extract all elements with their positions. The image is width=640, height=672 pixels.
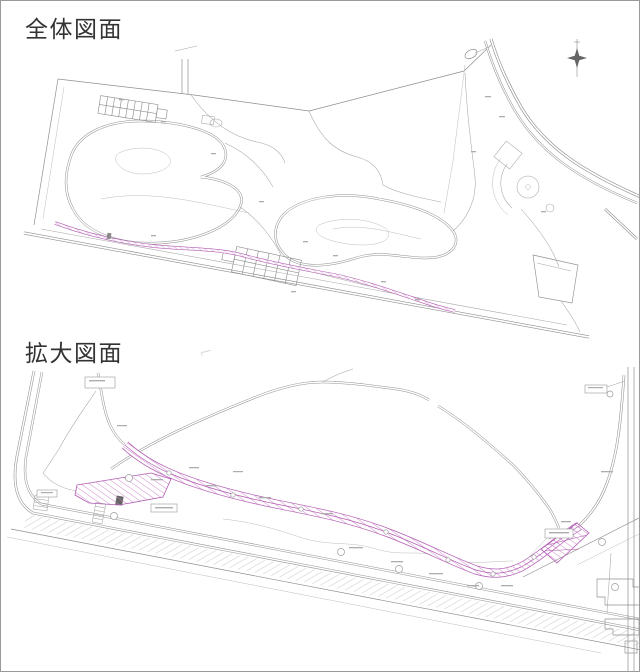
road-hatch-strip <box>25 521 640 640</box>
drawing-sheet: 全体図面 <box>0 0 640 672</box>
micro-annotations-overall <box>119 96 546 300</box>
building-southeast <box>533 255 580 332</box>
building-grid-northwest <box>98 96 168 124</box>
perimeter-roads <box>24 39 640 337</box>
enlarged-plan-drawing <box>1 359 640 672</box>
round-structure <box>493 141 554 215</box>
stray-mark <box>201 350 212 356</box>
route-widening-west <box>75 473 171 505</box>
overall-plan-drawing <box>1 31 640 341</box>
upper-walkways <box>111 369 559 528</box>
north-walkway <box>43 373 125 491</box>
north-arrow-icon <box>567 39 587 77</box>
